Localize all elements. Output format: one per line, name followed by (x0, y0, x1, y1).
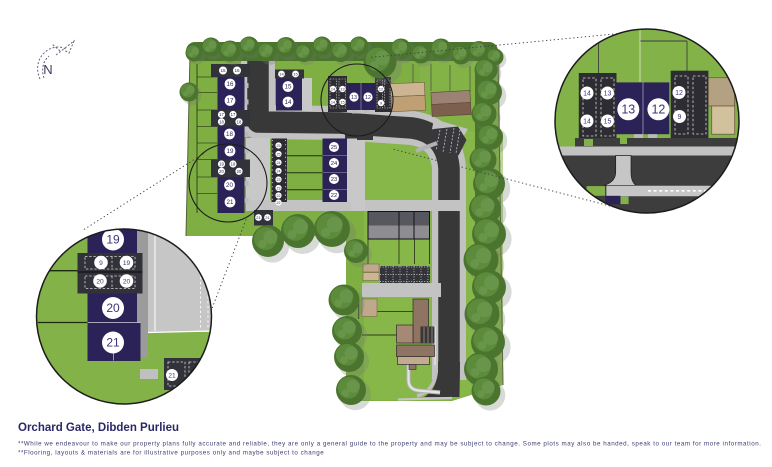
svg-text:20: 20 (123, 278, 131, 285)
svg-text:13: 13 (351, 95, 357, 101)
svg-text:13: 13 (340, 87, 344, 91)
svg-text:15: 15 (604, 118, 612, 125)
svg-text:15: 15 (293, 72, 298, 77)
svg-text:22: 22 (277, 194, 281, 198)
svg-text:21: 21 (227, 199, 234, 206)
svg-text:23: 23 (331, 177, 337, 183)
svg-text:21: 21 (106, 336, 120, 350)
svg-text:23: 23 (277, 178, 281, 182)
svg-text:23: 23 (277, 186, 281, 190)
svg-text:15: 15 (220, 68, 226, 73)
svg-text:14: 14 (331, 100, 335, 104)
svg-text:24: 24 (277, 161, 281, 165)
svg-text:22: 22 (331, 193, 337, 199)
svg-text:18: 18 (219, 119, 224, 124)
svg-text:19: 19 (106, 233, 120, 247)
svg-text:12: 12 (651, 103, 665, 117)
svg-text:25: 25 (277, 144, 281, 148)
svg-text:18: 18 (237, 119, 242, 124)
svg-text:9: 9 (380, 101, 382, 105)
svg-text:**While we endeavour to make o: **While we endeavour to make our propert… (18, 441, 761, 448)
svg-text:22: 22 (277, 201, 281, 205)
svg-text:12: 12 (365, 95, 371, 101)
svg-text:Orchard Gate, Dibden Purlieu: Orchard Gate, Dibden Purlieu (18, 422, 179, 434)
svg-text:13: 13 (604, 90, 612, 97)
svg-text:12: 12 (379, 87, 383, 91)
svg-text:16: 16 (234, 68, 240, 73)
svg-text:**Flooring, layouts & material: **Flooring, layouts & materials are for … (18, 450, 324, 457)
svg-text:20: 20 (96, 278, 104, 285)
svg-text:21: 21 (256, 215, 261, 220)
svg-text:17: 17 (227, 98, 234, 105)
svg-text:24: 24 (331, 161, 338, 167)
svg-text:21: 21 (265, 215, 270, 220)
svg-text:21: 21 (168, 372, 176, 379)
svg-text:20: 20 (226, 182, 233, 189)
svg-text:20: 20 (219, 169, 224, 174)
svg-text:25: 25 (331, 145, 337, 151)
svg-text:14: 14 (285, 99, 292, 106)
svg-text:9: 9 (678, 114, 682, 121)
svg-text:19: 19 (231, 162, 236, 167)
svg-text:18: 18 (226, 131, 233, 138)
svg-text:12: 12 (675, 90, 683, 97)
svg-text:20: 20 (237, 169, 242, 174)
svg-text:17: 17 (219, 112, 224, 117)
svg-text:14: 14 (583, 90, 591, 97)
svg-text:19: 19 (219, 162, 224, 167)
svg-text:14: 14 (279, 72, 284, 77)
svg-text:19: 19 (227, 148, 234, 155)
svg-text:17: 17 (231, 112, 236, 117)
svg-text:19: 19 (123, 260, 131, 267)
svg-text:15: 15 (340, 100, 344, 104)
svg-text:9: 9 (99, 260, 103, 267)
svg-text:N: N (43, 62, 52, 77)
svg-text:16: 16 (227, 81, 234, 88)
svg-text:13: 13 (621, 103, 635, 117)
svg-text:20: 20 (106, 301, 120, 315)
svg-text:24: 24 (277, 169, 281, 173)
svg-text:14: 14 (331, 87, 335, 91)
svg-text:25: 25 (277, 152, 281, 156)
svg-text:15: 15 (285, 84, 292, 91)
svg-text:14: 14 (583, 118, 591, 125)
